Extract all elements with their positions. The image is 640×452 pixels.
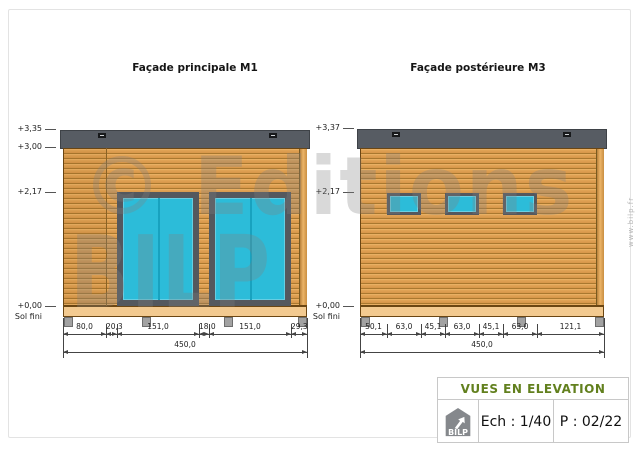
level-lintel: +2,17 [300,187,340,197]
website-url-vertical: www.bilp.fr [627,185,635,247]
dimension-segment: 80,0 [63,332,106,337]
dimension-segment: 45,1 [479,332,503,337]
left-corner-board [299,149,307,305]
roof-drain-icon [269,133,277,138]
small-window-1 [387,193,421,215]
left-wall-seam [106,148,107,306]
dimension-segment: 50,1 [360,332,387,337]
dimension-value: 63,0 [503,323,537,331]
scale-cell: Ech : 1/40 [479,400,554,443]
roof-drain-icon [98,133,106,138]
dimension-value: 18,0 [199,323,209,331]
level-dash [343,306,354,307]
dimension-segment: 20,3 [106,332,117,337]
drawing-sheet: Façade principale M1 Façade postérieure … [0,0,640,452]
small-window-3 [503,193,537,215]
door-mullion [250,198,252,300]
page-number-cell: P : 02/22 [554,400,628,443]
dimension-value: 151,0 [209,323,291,331]
dimension-segment: 63,0 [387,332,421,337]
dimension-value: 50,1 [360,323,387,331]
roof-drain-icon [392,132,400,137]
level-dash [343,128,354,129]
level-dash [45,129,56,130]
door-mullion [158,198,160,300]
small-window-2 [445,193,479,215]
dimension-segment: 29,3 [291,332,307,337]
dimension-segment: 45,1 [421,332,445,337]
roof-drain-icon [563,132,571,137]
dimension-segment: 121,1 [537,332,604,337]
dimension-segment: 151,0 [209,332,291,337]
level-roof-top: +3,37 [300,123,340,133]
level-lintel: +2,17 [2,187,42,197]
level-dash [45,306,56,307]
level-ground: +0,00 [2,301,42,311]
dimension-value: 80,0 [63,323,106,331]
dimension-segment: 63,0 [503,332,537,337]
dimension-value: 151,0 [117,323,199,331]
dimension-segment: 18,0 [199,332,209,337]
left-wall-return-shade [63,148,107,306]
left-facade-title: Façade principale M1 [85,62,305,74]
right-corner-board [596,149,604,305]
dimension-value: 121,1 [537,323,604,331]
level-ground-sub: Sol fini [2,312,42,322]
level-roof-bottom: +3,00 [2,142,42,152]
level-dash [343,192,354,193]
right-roof-band [357,129,607,149]
bilp-logo-icon: BILP [444,406,472,438]
dimension-value: 63,0 [445,323,479,331]
left-roof-band [60,130,310,149]
dimension-total-value: 450,0 [63,341,307,349]
level-ground-sub: Sol fini [300,312,340,322]
dimension-value: 20,3 [106,323,117,331]
dimension-value: 45,1 [479,323,503,331]
dimension-segment-total: 450,0 [360,350,604,355]
level-ground: +0,00 [300,301,340,311]
dimension-segment-total: 450,0 [63,350,307,355]
dimension-tick [604,318,605,358]
svg-text:BILP: BILP [448,428,468,437]
bilp-logo: BILP [438,400,479,443]
glazed-door-2 [209,192,291,306]
level-roof-top: +3,35 [2,124,42,134]
right-facade-wall [360,148,604,306]
dimension-total-value: 450,0 [360,341,604,349]
dimension-segment: 151,0 [117,332,199,337]
level-dash [45,192,56,193]
right-base-band [360,306,604,317]
left-base-band [63,306,307,317]
dimension-value: 45,1 [421,323,445,331]
right-facade-title: Façade postérieure M3 [368,62,588,74]
glazed-door-1 [117,192,199,306]
title-block: VUES EN ELEVATION BILP Ech : 1/40 P : 02… [437,377,629,443]
dimension-value: 63,0 [387,323,421,331]
dimension-segment: 63,0 [445,332,479,337]
title-block-heading: VUES EN ELEVATION [438,378,628,400]
dimension-value: 29,3 [291,323,307,331]
level-dash [45,147,56,148]
